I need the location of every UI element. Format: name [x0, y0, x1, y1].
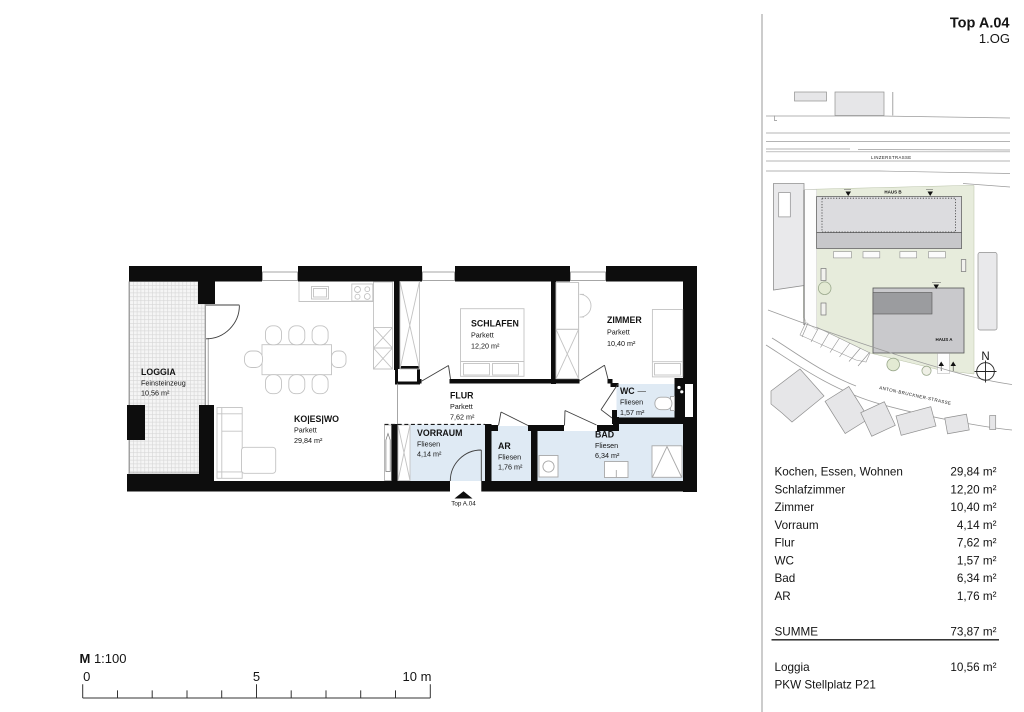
- svg-text:10,40 m²: 10,40 m²: [607, 339, 636, 348]
- svg-text:SCHLAFEN: SCHLAFEN: [471, 319, 519, 329]
- svg-text:Kochen, Essen, Wohnen: Kochen, Essen, Wohnen: [775, 466, 903, 479]
- svg-text:1.OG: 1.OG: [979, 31, 1010, 46]
- svg-text:1,76 m²: 1,76 m²: [498, 463, 523, 472]
- svg-text:10,56 m²: 10,56 m²: [950, 661, 996, 674]
- svg-text:SUMME: SUMME: [775, 626, 819, 639]
- svg-text:Fliesen: Fliesen: [595, 441, 618, 450]
- svg-text:12,20 m²: 12,20 m²: [950, 483, 996, 496]
- svg-text:7,62 m²: 7,62 m²: [957, 537, 997, 550]
- svg-text:Vorraum: Vorraum: [775, 519, 819, 532]
- svg-text:Parkett: Parkett: [450, 402, 473, 411]
- svg-text:10 m: 10 m: [403, 669, 432, 684]
- svg-text:PKW Stellplatz P21: PKW Stellplatz P21: [775, 679, 876, 692]
- svg-text:Flur: Flur: [775, 537, 795, 550]
- svg-text:BAD: BAD: [595, 430, 614, 440]
- svg-text:1,76 m²: 1,76 m²: [957, 590, 997, 603]
- svg-text:KO|ES|WO: KO|ES|WO: [294, 414, 339, 424]
- svg-text:Top A.04: Top A.04: [451, 501, 476, 508]
- svg-text:12,20 m²: 12,20 m²: [471, 342, 500, 351]
- svg-text:73,87 m²: 73,87 m²: [950, 626, 996, 639]
- svg-text:FLUR: FLUR: [450, 391, 474, 401]
- svg-text:4,14 m²: 4,14 m²: [417, 450, 442, 459]
- svg-text:4,14 m²: 4,14 m²: [957, 519, 997, 532]
- svg-text:Feinsteinzeug: Feinsteinzeug: [141, 379, 186, 388]
- svg-text:10,56 m²: 10,56 m²: [141, 389, 170, 398]
- svg-text:ANTON-BRUCKNER-STRASSE: ANTON-BRUCKNER-STRASSE: [879, 385, 952, 406]
- svg-text:Zimmer: Zimmer: [775, 501, 815, 514]
- svg-text:Fliesen: Fliesen: [498, 453, 521, 462]
- svg-text:Parkett: Parkett: [607, 328, 630, 337]
- svg-text:HAUS A: HAUS A: [935, 337, 953, 342]
- svg-text:7,62 m²: 7,62 m²: [450, 413, 475, 422]
- svg-text:Top A.04: Top A.04: [950, 16, 1010, 32]
- svg-text:ZIMMER: ZIMMER: [607, 315, 642, 325]
- svg-text:6,34 m²: 6,34 m²: [957, 572, 997, 585]
- svg-text:M 1:100: M 1:100: [80, 651, 127, 666]
- svg-text:LOGGIA: LOGGIA: [141, 367, 176, 377]
- svg-text:29,84 m²: 29,84 m²: [950, 466, 996, 479]
- svg-text:1,57 m²: 1,57 m²: [957, 554, 997, 567]
- svg-text:AR: AR: [775, 590, 791, 603]
- svg-text:WC: WC: [775, 554, 794, 567]
- svg-text:AR: AR: [498, 441, 511, 451]
- svg-text:0: 0: [83, 669, 90, 684]
- svg-text:5: 5: [253, 669, 260, 684]
- svg-text:1,57 m²: 1,57 m²: [620, 408, 645, 417]
- svg-text:6,34 m²: 6,34 m²: [595, 451, 620, 460]
- svg-text:N: N: [981, 351, 989, 363]
- svg-text:Parkett: Parkett: [294, 426, 317, 435]
- svg-text:LINZERSTRASSE: LINZERSTRASSE: [871, 155, 912, 160]
- svg-text:Fliesen: Fliesen: [417, 440, 440, 449]
- svg-text:Loggia: Loggia: [775, 661, 811, 674]
- svg-text:10,40 m²: 10,40 m²: [950, 501, 996, 514]
- svg-text:Parkett: Parkett: [471, 331, 494, 340]
- svg-text:WC: WC: [620, 386, 635, 396]
- svg-text:Fliesen: Fliesen: [620, 398, 643, 407]
- svg-text:Bad: Bad: [775, 572, 796, 585]
- svg-text:Schlafzimmer: Schlafzimmer: [775, 483, 846, 496]
- svg-text:HAUS B: HAUS B: [884, 190, 902, 195]
- svg-text:29,84 m²: 29,84 m²: [294, 436, 323, 445]
- svg-text:VORRAUM: VORRAUM: [417, 428, 462, 438]
